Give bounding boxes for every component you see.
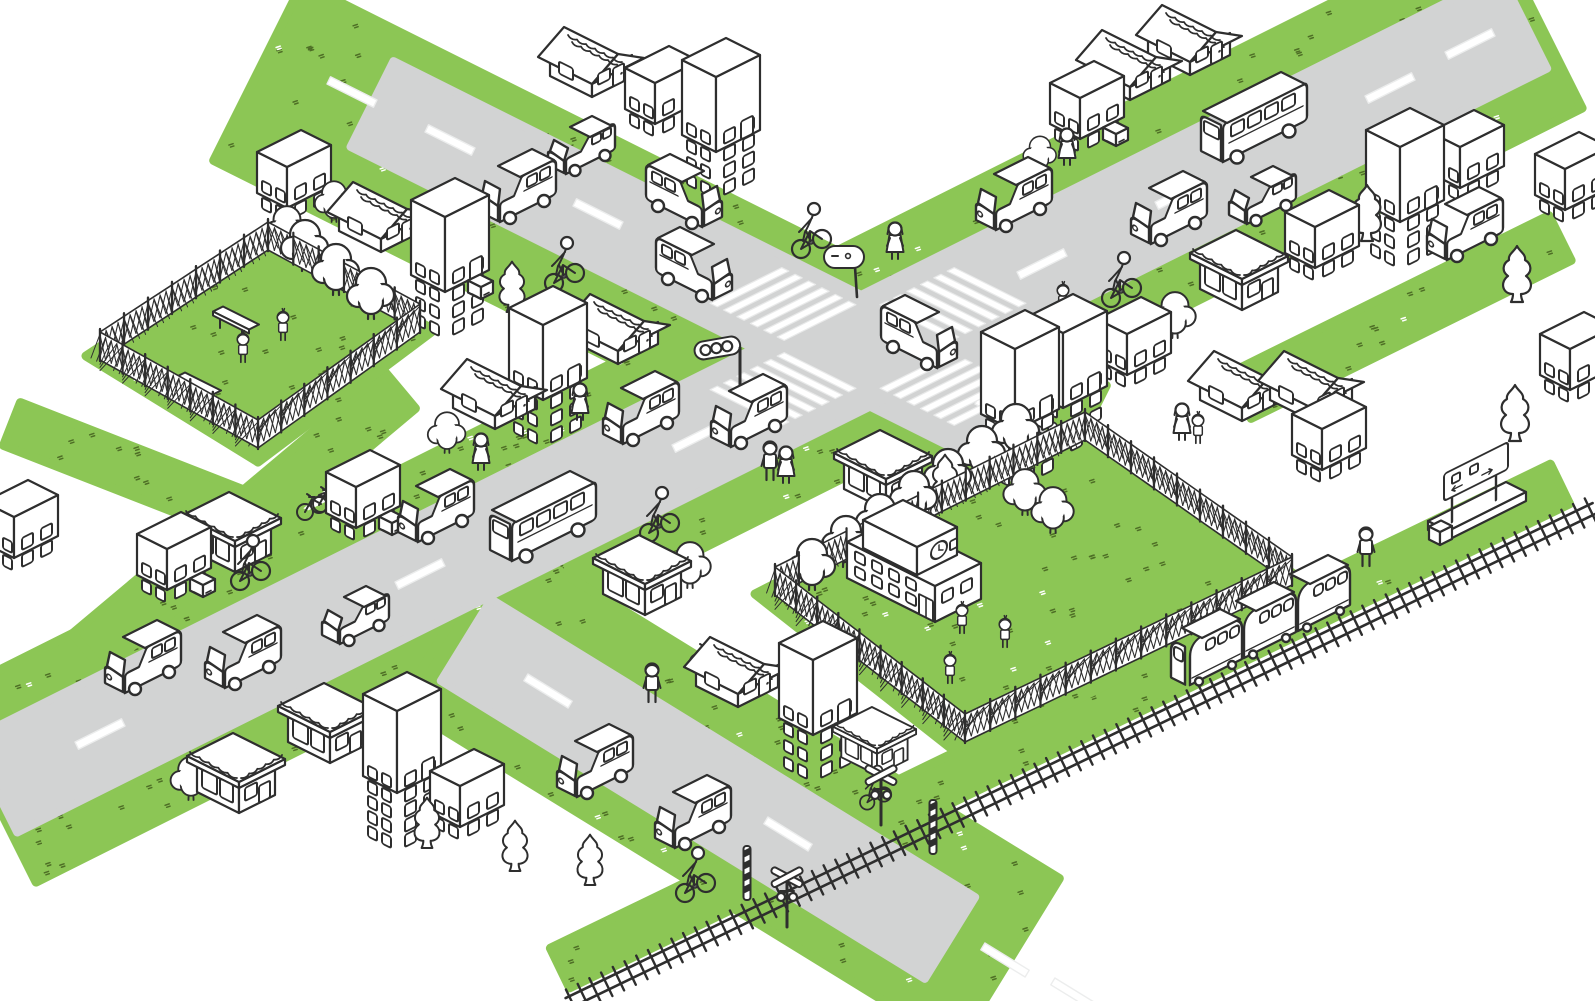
town-scene-canvas bbox=[0, 0, 1595, 1001]
crossing-pole bbox=[744, 846, 751, 900]
isometric-town-illustration bbox=[0, 0, 1595, 1001]
crossing-pole bbox=[930, 800, 937, 854]
